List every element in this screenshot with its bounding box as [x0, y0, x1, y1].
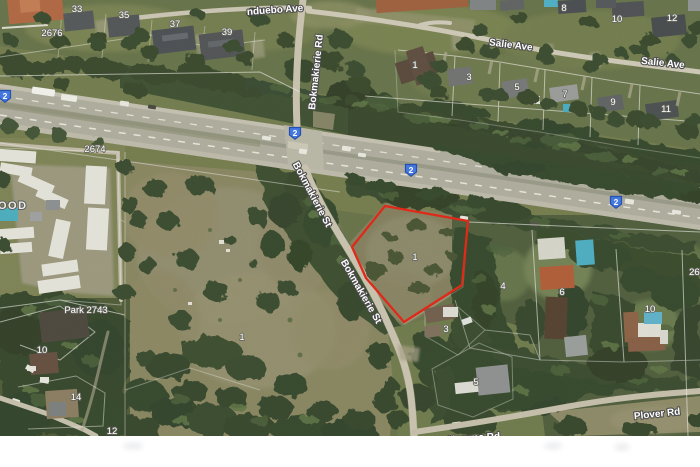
svg-text:33: 33: [72, 4, 83, 15]
svg-text:1: 1: [239, 332, 244, 343]
svg-text:39: 39: [222, 27, 233, 38]
svg-text:2674: 2674: [84, 144, 105, 155]
svg-text:9: 9: [610, 97, 615, 108]
svg-text:1: 1: [412, 252, 417, 263]
svg-text:2676: 2676: [41, 28, 62, 39]
svg-text:12: 12: [667, 13, 678, 24]
svg-text:12: 12: [107, 426, 118, 437]
svg-text:Park 2743: Park 2743: [64, 305, 107, 316]
svg-text:4: 4: [500, 281, 505, 292]
svg-text:10: 10: [37, 345, 48, 356]
svg-text:OOD: OOD: [0, 200, 28, 212]
svg-text:3: 3: [466, 72, 471, 83]
svg-text:6: 6: [559, 287, 564, 298]
svg-text:2: 2: [3, 91, 8, 101]
svg-text:10: 10: [612, 14, 623, 25]
svg-text:5: 5: [473, 377, 478, 388]
svg-text:5: 5: [514, 82, 519, 93]
svg-text:8: 8: [561, 3, 566, 14]
svg-text:3: 3: [443, 324, 448, 335]
svg-text:14: 14: [71, 392, 82, 403]
svg-text:10: 10: [645, 304, 656, 315]
svg-text:35: 35: [119, 10, 130, 21]
svg-text:267: 267: [689, 267, 700, 278]
svg-text:37: 37: [170, 19, 181, 30]
svg-text:11: 11: [661, 104, 671, 115]
svg-text:1: 1: [412, 60, 417, 71]
svg-text:7: 7: [562, 89, 567, 100]
